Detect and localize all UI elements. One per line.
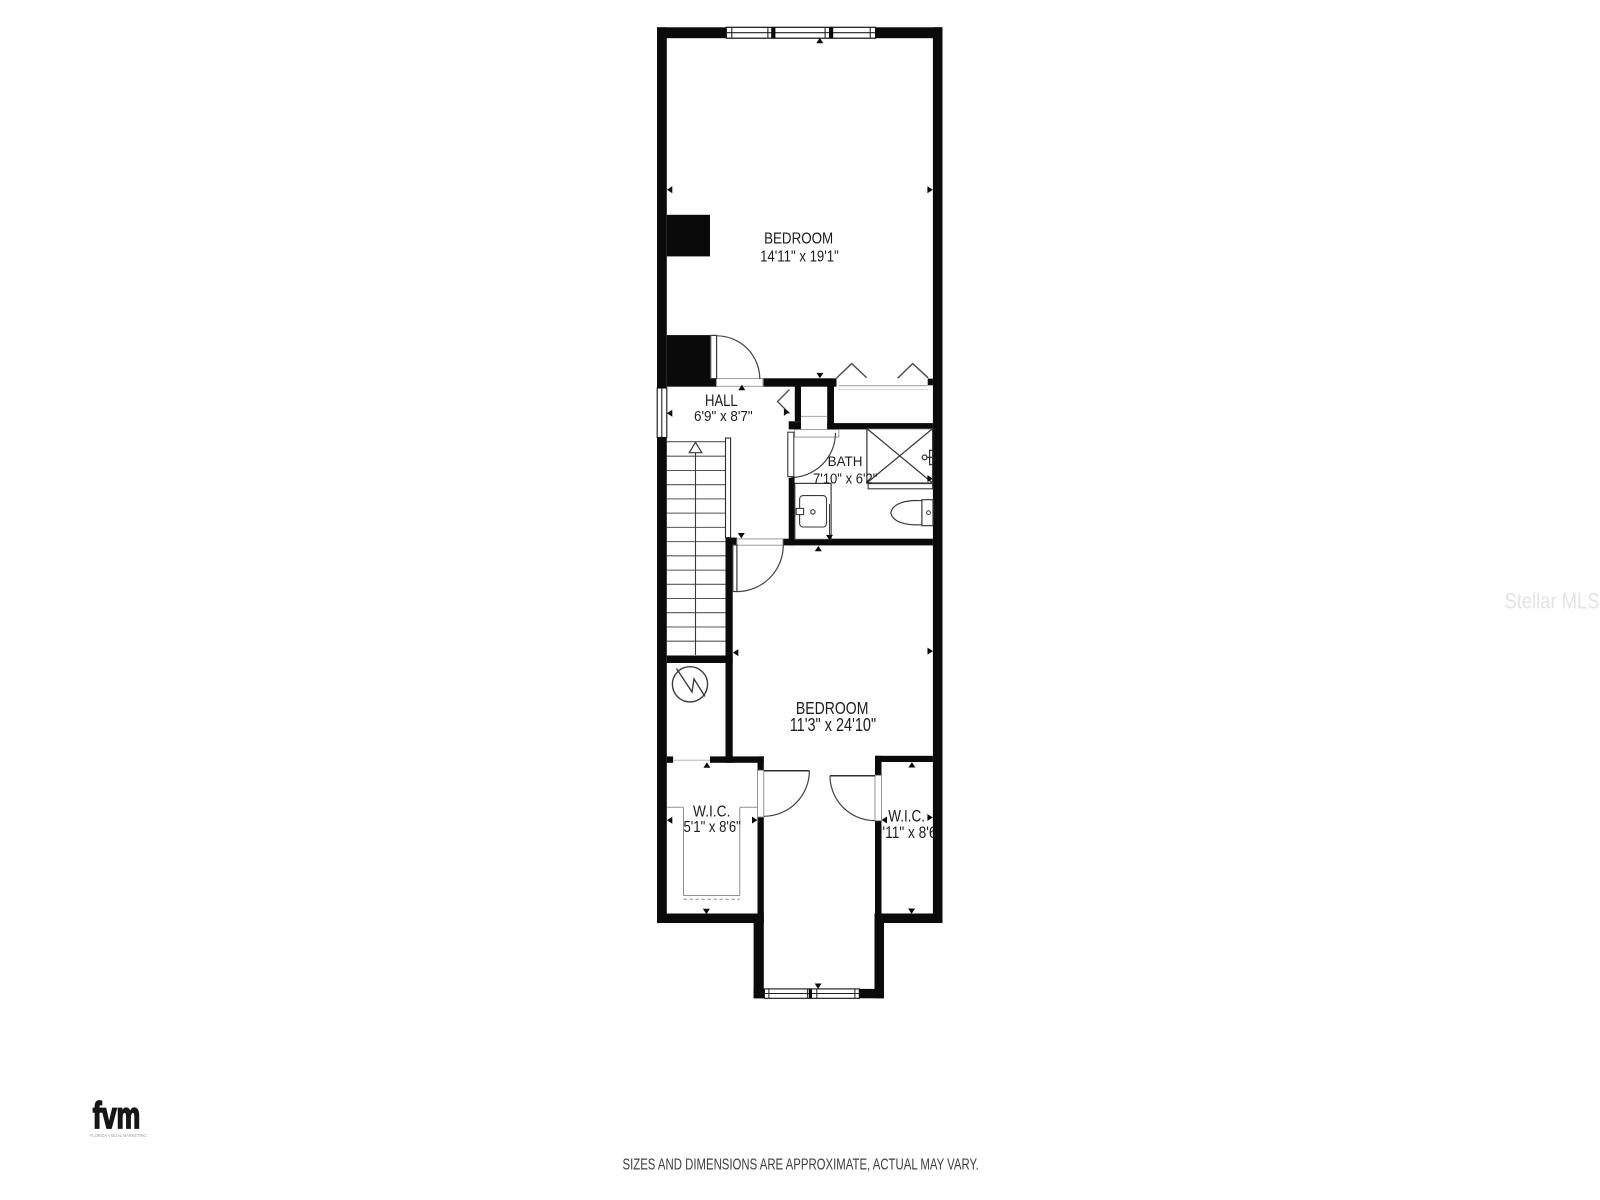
svg-text:14'11" x 19'1": 14'11" x 19'1": [760, 249, 839, 266]
svg-text:6'9" x 8'7": 6'9" x 8'7": [694, 408, 753, 425]
svg-text:BEDROOM: BEDROOM: [764, 231, 833, 248]
svg-text:W.I.C.: W.I.C.: [888, 808, 925, 826]
svg-text:5'1" x 8'6": 5'1" x 8'6": [684, 819, 741, 836]
svg-text:BATH: BATH: [828, 453, 863, 469]
svg-text:Stellar MLS: Stellar MLS: [1505, 588, 1600, 613]
svg-text:FLORIDA VISUAL MARKETING: FLORIDA VISUAL MARKETING: [90, 1133, 147, 1138]
svg-text:W.I.C.: W.I.C.: [693, 804, 730, 821]
svg-text:'11" x 8'6: '11" x 8'6: [883, 824, 937, 842]
svg-text:SIZES AND DIMENSIONS ARE APPRO: SIZES AND DIMENSIONS ARE APPROXIMATE, AC…: [623, 1156, 979, 1173]
svg-text:7'10" x 6'2": 7'10" x 6'2": [813, 471, 877, 487]
svg-text:11'3" x 24'10": 11'3" x 24'10": [790, 715, 876, 735]
svg-text:fvm: fvm: [93, 1095, 141, 1136]
